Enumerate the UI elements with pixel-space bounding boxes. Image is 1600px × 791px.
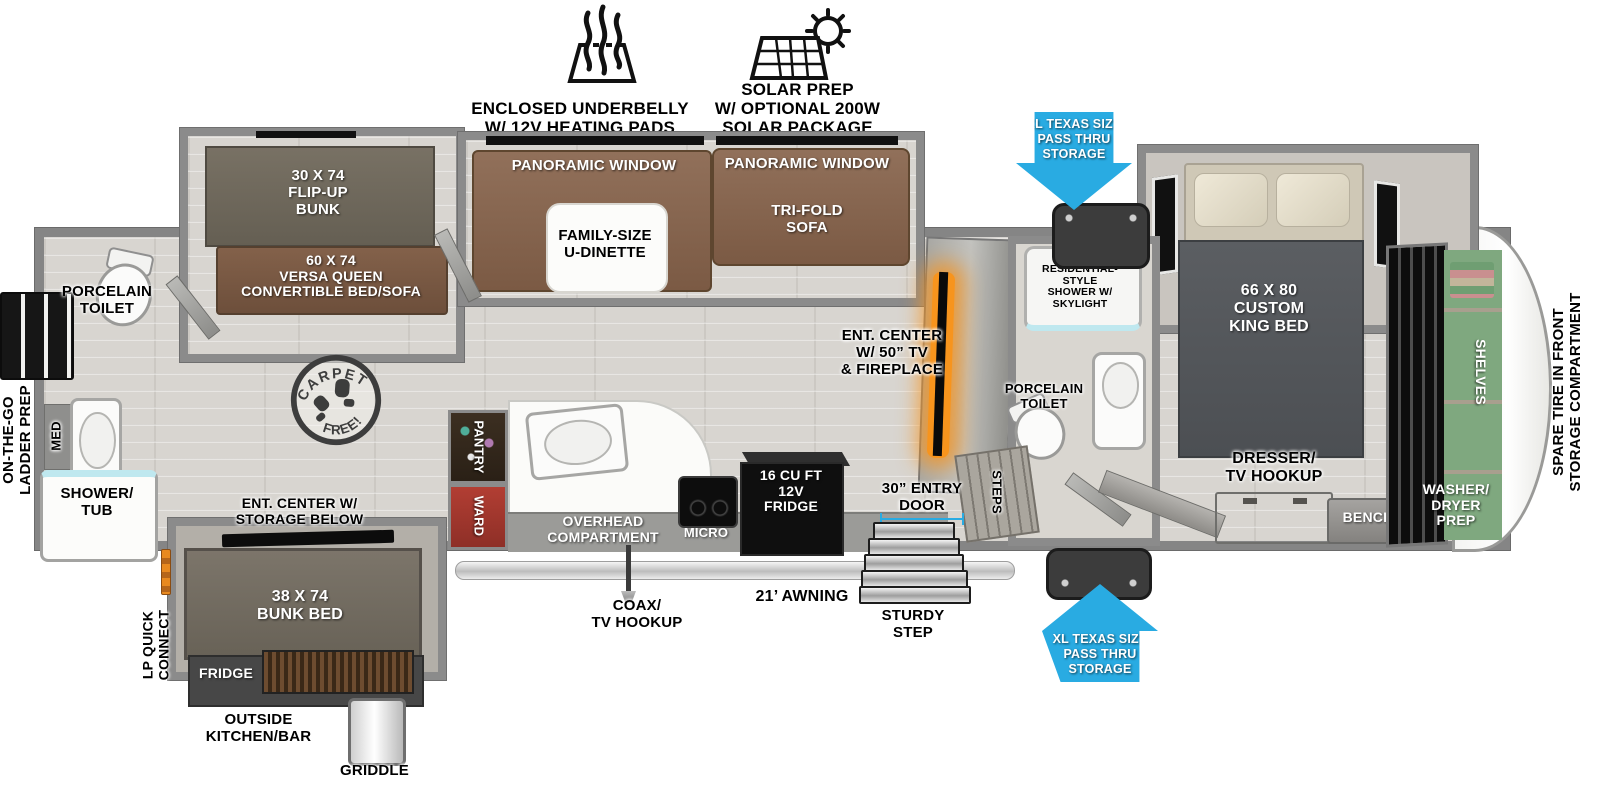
u-dinette-label: FAMILY-SIZE U-DINETTE xyxy=(548,228,662,262)
pass-thru-box-top xyxy=(1052,203,1150,269)
king-bed-label: 66 X 80 CUSTOM KING BED xyxy=(1208,282,1330,336)
bath-vanity-sink xyxy=(1092,352,1146,450)
pass-thru-arrow-top: XL TEXAS SIZE PASS THRU STORAGE xyxy=(1016,112,1132,210)
spare-tire-label: SPARE TIRE IN FRONT STORAGE COMPARTMENT xyxy=(1551,276,1585,508)
ladder-prep-label: ON-THE-GO LADDER PREP xyxy=(1,381,35,499)
shower-tub-label: SHOWER/ TUB xyxy=(56,486,138,520)
sofa-window-strip xyxy=(716,136,898,145)
griddle-label: GRIDDLE xyxy=(332,763,417,780)
coax-hookup-icon xyxy=(626,545,631,593)
king-bed-pillow-right xyxy=(1276,173,1350,227)
entry-door-measure-line xyxy=(880,518,964,520)
steps-label: STEPS xyxy=(989,457,1004,527)
awning-label: 21’ AWNING xyxy=(742,588,862,606)
washer-dryer-label: WASHER/ DRYER PREP xyxy=(1406,482,1506,529)
rear-toilet-label: PORCELAIN TOILET xyxy=(52,284,162,318)
pass-thru-arrow-bottom-label: XL TEXAS SIZE PASS THRU STORAGE xyxy=(1050,632,1150,730)
rear-ent-center-label: ENT. CENTER W/ STORAGE BELOW xyxy=(222,496,377,527)
flip-up-bunk-label: 30 X 74 FLIP-UP BUNK xyxy=(248,168,388,218)
mid-toilet-label: PORCELAIN TOILET xyxy=(996,382,1092,411)
lp-quick-connect-icon xyxy=(161,549,171,595)
ent-center-tv-label: ENT. CENTER W/ 50” TV & FIREPLACE xyxy=(816,328,968,378)
panoramic-window-left-label: PANORAMIC WINDOW xyxy=(495,158,693,175)
twelve-volt-fridge-label: 16 CU FT 12V FRIDGE xyxy=(748,468,834,515)
ward-label: WARD xyxy=(471,486,486,546)
sturdy-step-icon xyxy=(856,522,972,606)
entry-door-label: 30” ENTRY DOOR xyxy=(870,481,974,515)
kitchen-sink xyxy=(525,403,630,481)
solar-prep-icon xyxy=(740,8,855,86)
pass-thru-arrow-top-label: XL TEXAS SIZE PASS THRU STORAGE xyxy=(1024,117,1124,215)
sturdy-step-label: STURDY STEP xyxy=(858,608,968,642)
king-bed-pillow-left xyxy=(1194,173,1268,227)
overhead-compartment-label: OVERHEAD COMPARTMENT xyxy=(512,514,694,545)
versa-queen-label: 60 X 74 VERSA QUEEN CONVERTIBLE BED/SOFA xyxy=(233,253,429,300)
panoramic-window-right-label: PANORAMIC WINDOW xyxy=(716,156,898,173)
heating-pads-icon xyxy=(540,3,660,99)
dresser xyxy=(1215,492,1333,544)
rear-slide-window xyxy=(256,131,356,138)
shelf-clothes xyxy=(1450,262,1494,298)
bunk-bed-label: 38 X 74 BUNK BED xyxy=(240,588,360,624)
outside-fridge-label: FRIDGE xyxy=(192,666,260,682)
coax-label: COAX/ TV HOOKUP xyxy=(582,598,692,632)
dinette-window-strip xyxy=(486,136,704,145)
pantry-label: PANTRY xyxy=(471,412,486,482)
king-bed xyxy=(1178,240,1364,458)
med-label: MED xyxy=(50,406,65,466)
shelves-label: SHELVES xyxy=(1472,327,1488,417)
solar-prep-label: SOLAR PREP W/ OPTIONAL 200W SOLAR PACKAG… xyxy=(705,80,890,137)
dresser-label: DRESSER/ TV HOOKUP xyxy=(1208,450,1340,486)
outside-kitchen-label: OUTSIDE KITCHEN/BAR xyxy=(196,712,321,746)
griddle xyxy=(348,698,406,766)
tri-fold-sofa-label: TRI-FOLD SOFA xyxy=(752,203,862,237)
lp-quick-connect-label: LP QUICK CONNECT xyxy=(140,599,171,691)
floorplan-diagram: ENCLOSED UNDERBELLY W/ 12V HEATING PADS … xyxy=(0,0,1600,791)
microwave xyxy=(678,476,738,528)
micro-label: MICRO xyxy=(672,526,740,541)
outside-grill xyxy=(262,650,414,694)
